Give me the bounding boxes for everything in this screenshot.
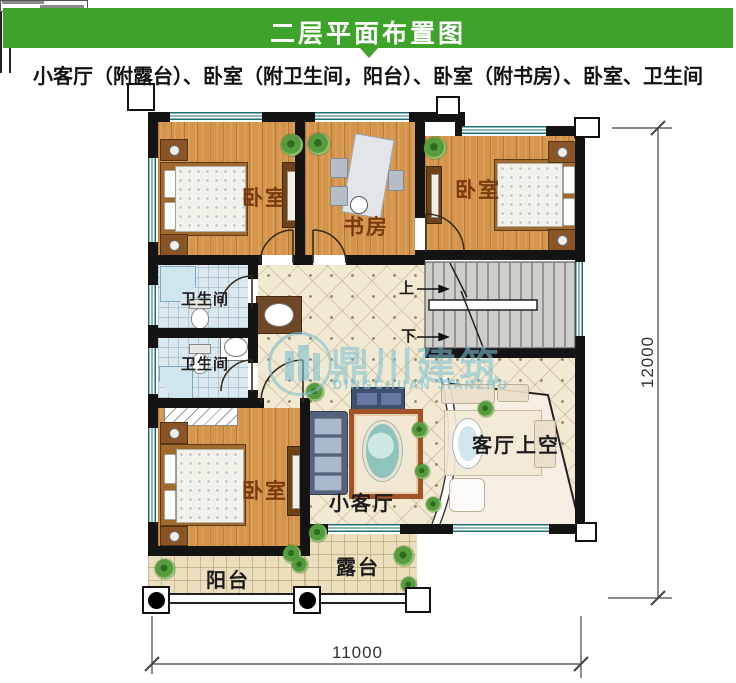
window bbox=[313, 112, 411, 122]
wall-segment bbox=[148, 328, 258, 338]
dimension-bottom: 11000 bbox=[332, 643, 383, 663]
chair bbox=[388, 170, 404, 191]
mattress bbox=[175, 166, 246, 232]
dimension-right: 12000 bbox=[638, 332, 658, 392]
window bbox=[168, 112, 264, 122]
plant-icon bbox=[424, 137, 446, 159]
plant-icon bbox=[281, 134, 303, 156]
room-label-bedroom-tl: 卧室 bbox=[242, 182, 288, 212]
column-marker bbox=[405, 587, 431, 613]
balcony-railing bbox=[150, 593, 313, 604]
room-label-bath-upper: 卫生间 bbox=[181, 288, 229, 309]
wall-segment bbox=[415, 250, 585, 260]
wall-segment bbox=[248, 265, 258, 279]
header-pointer-triangle bbox=[360, 48, 378, 58]
toilet bbox=[191, 308, 209, 329]
mattress bbox=[497, 163, 563, 227]
room-label-terrace: 露台 bbox=[336, 551, 380, 580]
room-label-study: 书房 bbox=[343, 211, 389, 241]
plant-icon bbox=[309, 524, 327, 542]
void-armchair bbox=[449, 478, 485, 512]
plant-icon bbox=[415, 464, 430, 479]
stairwell-floor bbox=[425, 262, 575, 348]
nightstand bbox=[548, 229, 576, 251]
pillow bbox=[164, 490, 176, 520]
bed bbox=[160, 444, 246, 526]
rug bbox=[349, 409, 423, 499]
bed bbox=[494, 159, 578, 231]
header-bar: 二层平面布置图 bbox=[3, 8, 733, 48]
window bbox=[148, 426, 158, 524]
plant-icon bbox=[292, 557, 308, 573]
pillow bbox=[164, 170, 176, 198]
column-marker bbox=[436, 96, 460, 116]
sofa bbox=[306, 411, 348, 495]
room-label-living-void: 客厅上空 bbox=[472, 429, 560, 458]
wall-segment bbox=[415, 112, 425, 218]
nightstand bbox=[160, 526, 188, 546]
stairs-up-label: 上 bbox=[399, 277, 416, 298]
wall-segment bbox=[148, 398, 264, 408]
plant-icon bbox=[478, 401, 494, 417]
wall-segment bbox=[293, 255, 313, 265]
room-label-bedroom-b: 卧室 bbox=[242, 475, 288, 505]
room-label-balcony: 阳台 bbox=[206, 564, 250, 593]
column-marker-filled bbox=[142, 586, 170, 614]
tv-stand bbox=[351, 387, 405, 410]
plant-icon bbox=[426, 497, 441, 512]
plant-icon bbox=[308, 133, 330, 155]
window bbox=[148, 283, 158, 327]
window bbox=[451, 524, 551, 534]
column-marker-filled bbox=[293, 586, 321, 614]
wardrobe bbox=[426, 166, 442, 224]
wall-segment bbox=[425, 348, 585, 358]
plant-icon bbox=[155, 559, 175, 579]
nightstand bbox=[160, 139, 188, 161]
void-sofa bbox=[497, 384, 529, 402]
nightstand bbox=[548, 141, 576, 163]
chair bbox=[330, 186, 348, 206]
pillow bbox=[563, 166, 575, 194]
chair bbox=[330, 158, 348, 178]
coffee-table bbox=[363, 421, 402, 481]
window bbox=[148, 156, 158, 244]
page-title: 二层平面布置图 bbox=[3, 14, 733, 50]
room-label-small-living: 小客厅 bbox=[329, 487, 395, 516]
room-label-bedroom-tr: 卧室 bbox=[455, 174, 501, 204]
plant-icon bbox=[306, 383, 324, 401]
floor-plan-page: 二层平面布置图 小客厅（附露台）、卧室（附卫生间，阳台）、卧室（附书房）、卧室、… bbox=[0, 0, 736, 683]
column-marker bbox=[574, 117, 600, 138]
room-label-bath-lower: 卫生间 bbox=[181, 353, 229, 374]
plant-icon bbox=[412, 422, 428, 438]
nightstand bbox=[160, 234, 188, 256]
pillow bbox=[164, 202, 176, 230]
stairs-down-label: 下 bbox=[401, 325, 418, 346]
pillow bbox=[164, 454, 176, 484]
column-marker bbox=[575, 522, 597, 542]
window bbox=[575, 260, 585, 338]
window bbox=[148, 346, 158, 396]
bed bbox=[160, 162, 248, 236]
pillow bbox=[563, 198, 575, 226]
window bbox=[460, 126, 548, 136]
plant-icon bbox=[394, 546, 414, 566]
wall-segment bbox=[148, 255, 262, 265]
plan-subtitle: 小客厅（附露台）、卧室（附卫生间，阳台）、卧室（附书房）、卧室、卫生间 bbox=[0, 60, 736, 89]
nightstand bbox=[160, 422, 188, 444]
window bbox=[326, 524, 402, 534]
mattress bbox=[176, 449, 244, 523]
wash-basin bbox=[264, 303, 294, 327]
wall-segment bbox=[346, 255, 425, 265]
